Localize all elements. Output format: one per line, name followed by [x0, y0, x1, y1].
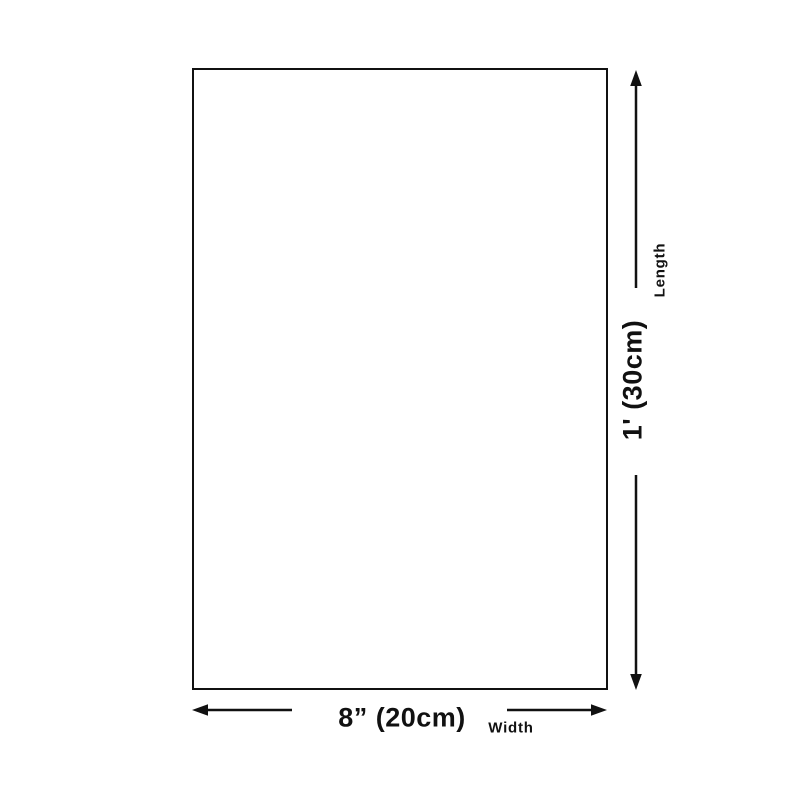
length-arrow-down-icon	[630, 475, 642, 690]
size-diagram: 1' (30cm) Length 8” (20cm) Width	[0, 0, 800, 800]
length-value: 1' (30cm)	[618, 320, 649, 440]
product-outline-rect	[192, 68, 608, 690]
width-value: 8” (20cm)	[338, 703, 466, 734]
width-label: Width	[488, 720, 534, 737]
width-arrow-right-icon	[507, 704, 607, 716]
length-label: Length	[652, 243, 669, 298]
width-arrow-left-icon	[192, 704, 292, 716]
length-arrow-up-icon	[630, 70, 642, 288]
